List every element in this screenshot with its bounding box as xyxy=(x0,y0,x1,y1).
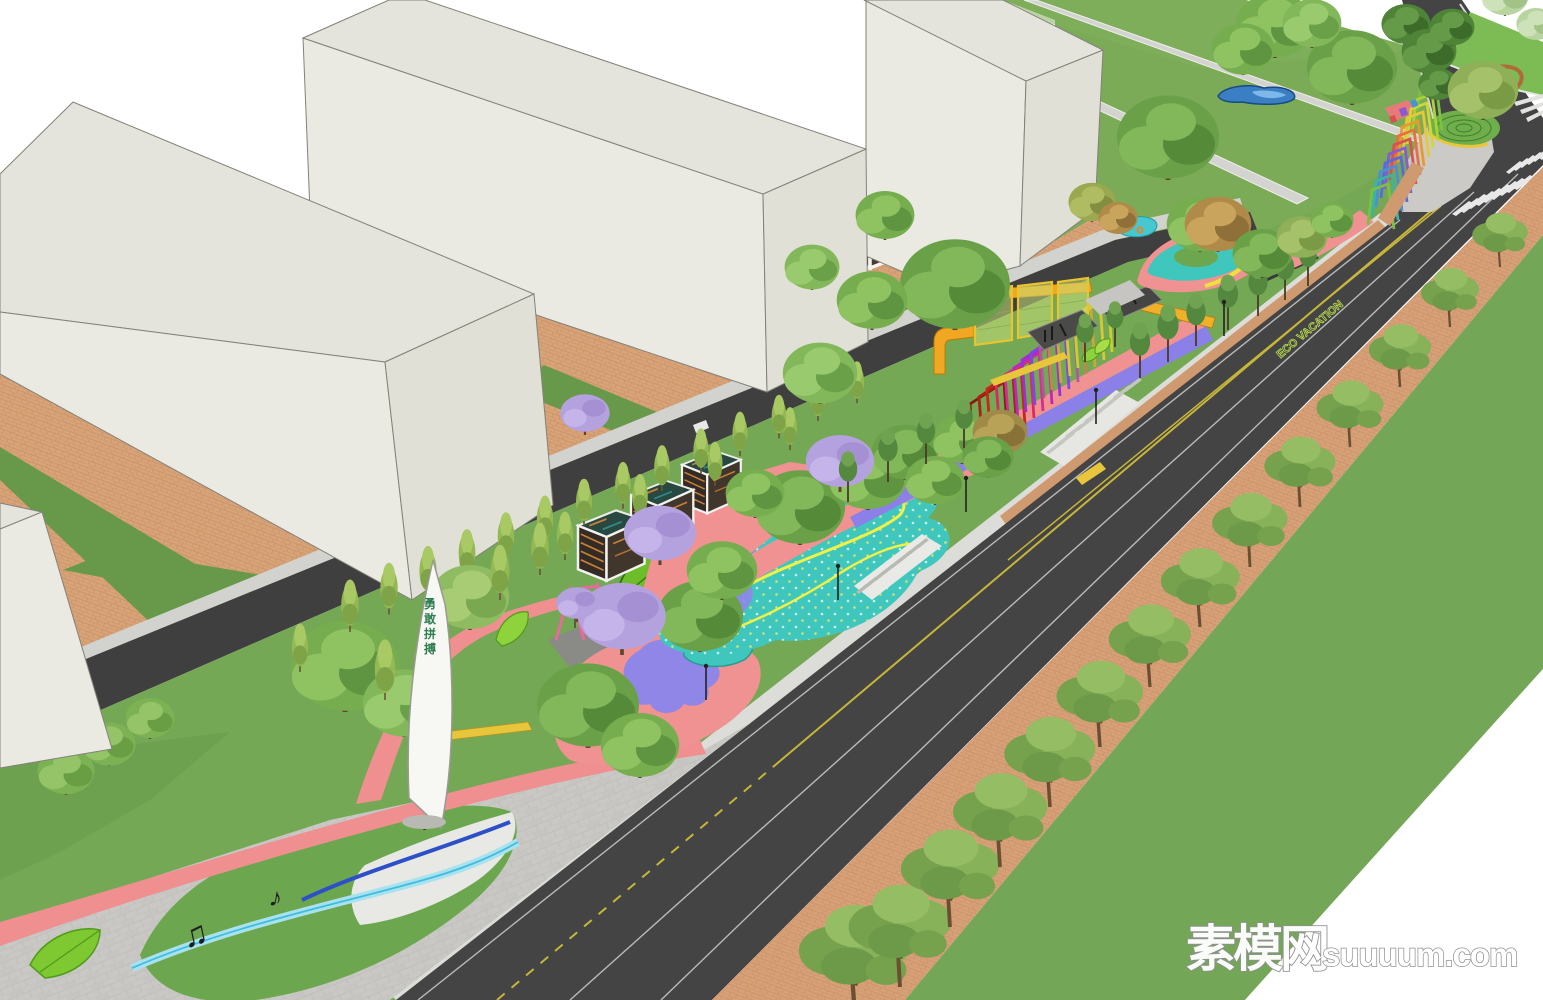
svg-text:搏: 搏 xyxy=(424,641,436,656)
svg-text:拼: 拼 xyxy=(424,626,436,641)
svg-text:素模网: 素模网 xyxy=(1186,921,1327,977)
svg-text:敢: 敢 xyxy=(424,611,437,626)
svg-text:suuuum.com: suuuum.com xyxy=(1322,936,1517,973)
svg-text:勇: 勇 xyxy=(424,597,436,611)
